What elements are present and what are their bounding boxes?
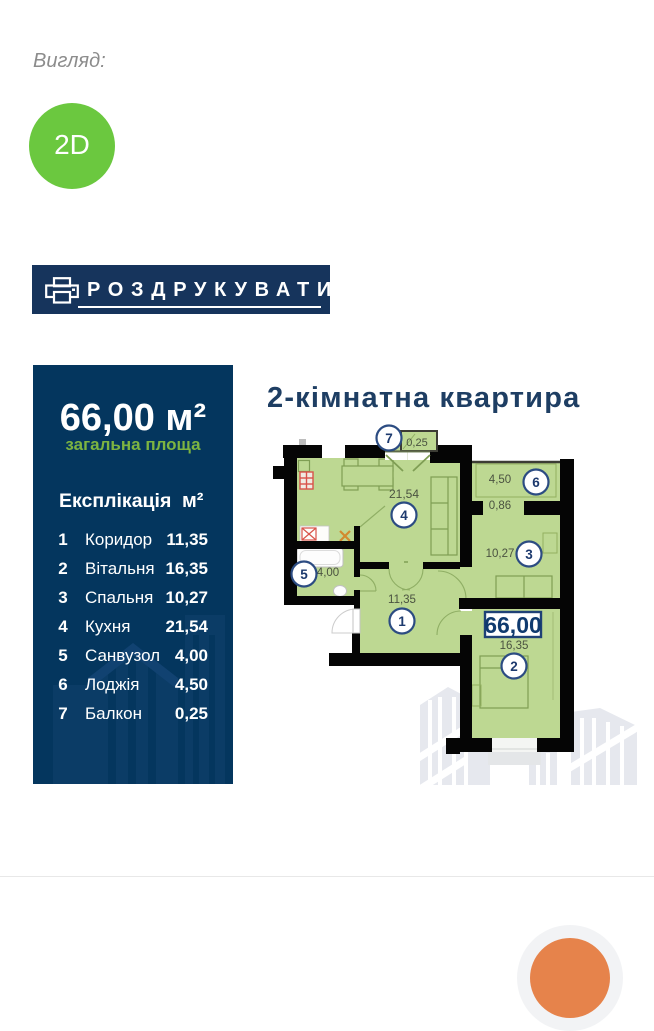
svg-text:0,25: 0,25 bbox=[406, 437, 427, 449]
svg-text:4,00: 4,00 bbox=[317, 567, 339, 579]
svg-text:2: 2 bbox=[510, 659, 518, 674]
svg-text:11,35: 11,35 bbox=[388, 594, 416, 606]
svg-text:5: 5 bbox=[300, 567, 308, 582]
svg-text:4,50: 4,50 bbox=[489, 474, 511, 486]
svg-text:4: 4 bbox=[400, 508, 408, 523]
svg-text:0,86: 0,86 bbox=[489, 500, 511, 512]
svg-text:21,54: 21,54 bbox=[389, 487, 419, 501]
svg-text:3: 3 bbox=[525, 547, 533, 562]
svg-text:7: 7 bbox=[385, 431, 393, 446]
svg-text:16,35: 16,35 bbox=[500, 640, 529, 652]
svg-text:1: 1 bbox=[398, 614, 406, 629]
svg-text:10,27: 10,27 bbox=[486, 548, 515, 560]
svg-text:66,00: 66,00 bbox=[484, 612, 542, 638]
svg-text:6: 6 bbox=[532, 475, 540, 490]
